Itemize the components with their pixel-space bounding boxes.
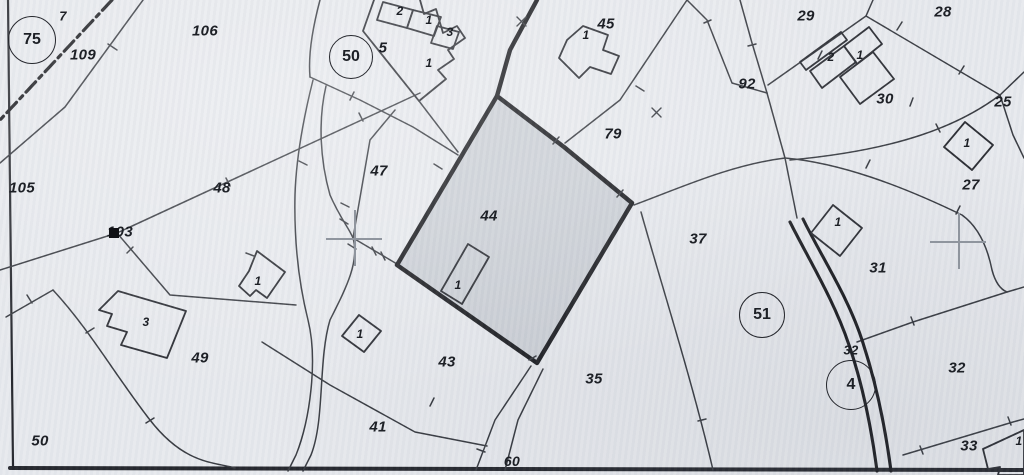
highlighted-parcel-44: [397, 0, 632, 363]
boundary: [0, 0, 143, 163]
boundary: [740, 0, 767, 93]
building-room: [431, 26, 459, 49]
boundary: [767, 93, 785, 158]
parcel-44-area: [397, 96, 632, 363]
building-outline: [800, 32, 847, 70]
boundary: [768, 0, 873, 85]
building-outline: [99, 291, 186, 358]
boundary: [353, 238, 397, 264]
boundary: [353, 110, 395, 238]
boundary: [866, 16, 1000, 95]
building-outline: [840, 52, 894, 104]
boundary: [687, 0, 767, 93]
cadastral-map-scan: 7109106105481034950547444341457935603792…: [0, 0, 1024, 475]
building-outline: [944, 122, 993, 170]
boundary: [785, 158, 797, 218]
dash-dot-boundary: [0, 0, 112, 120]
map-linework: [0, 0, 1024, 475]
boundary: [419, 101, 458, 152]
boundary: [6, 290, 53, 317]
frame-bottom: [10, 468, 1024, 470]
track-60-west-line: [476, 366, 531, 470]
boundary: [634, 158, 785, 205]
boundary: [0, 93, 420, 270]
boundary: [565, 0, 687, 143]
track-60-east-line: [505, 369, 543, 470]
boundary: [857, 287, 1024, 342]
building-outline: [342, 315, 381, 352]
building-outline: [239, 251, 285, 298]
boundary: [262, 342, 487, 446]
boundary: [641, 212, 713, 470]
footpath-west-line: [288, 80, 313, 471]
thick-boundary-extension: [497, 0, 537, 96]
building-outline: [559, 26, 619, 78]
frame-left: [8, 0, 13, 466]
road-east-edge: [803, 219, 891, 471]
boundary: [310, 77, 458, 155]
boundary: [309, 0, 320, 77]
road-double-line: [790, 219, 891, 471]
boundary: [790, 95, 1000, 160]
boundary: [53, 290, 235, 468]
boundary: [1000, 72, 1024, 158]
